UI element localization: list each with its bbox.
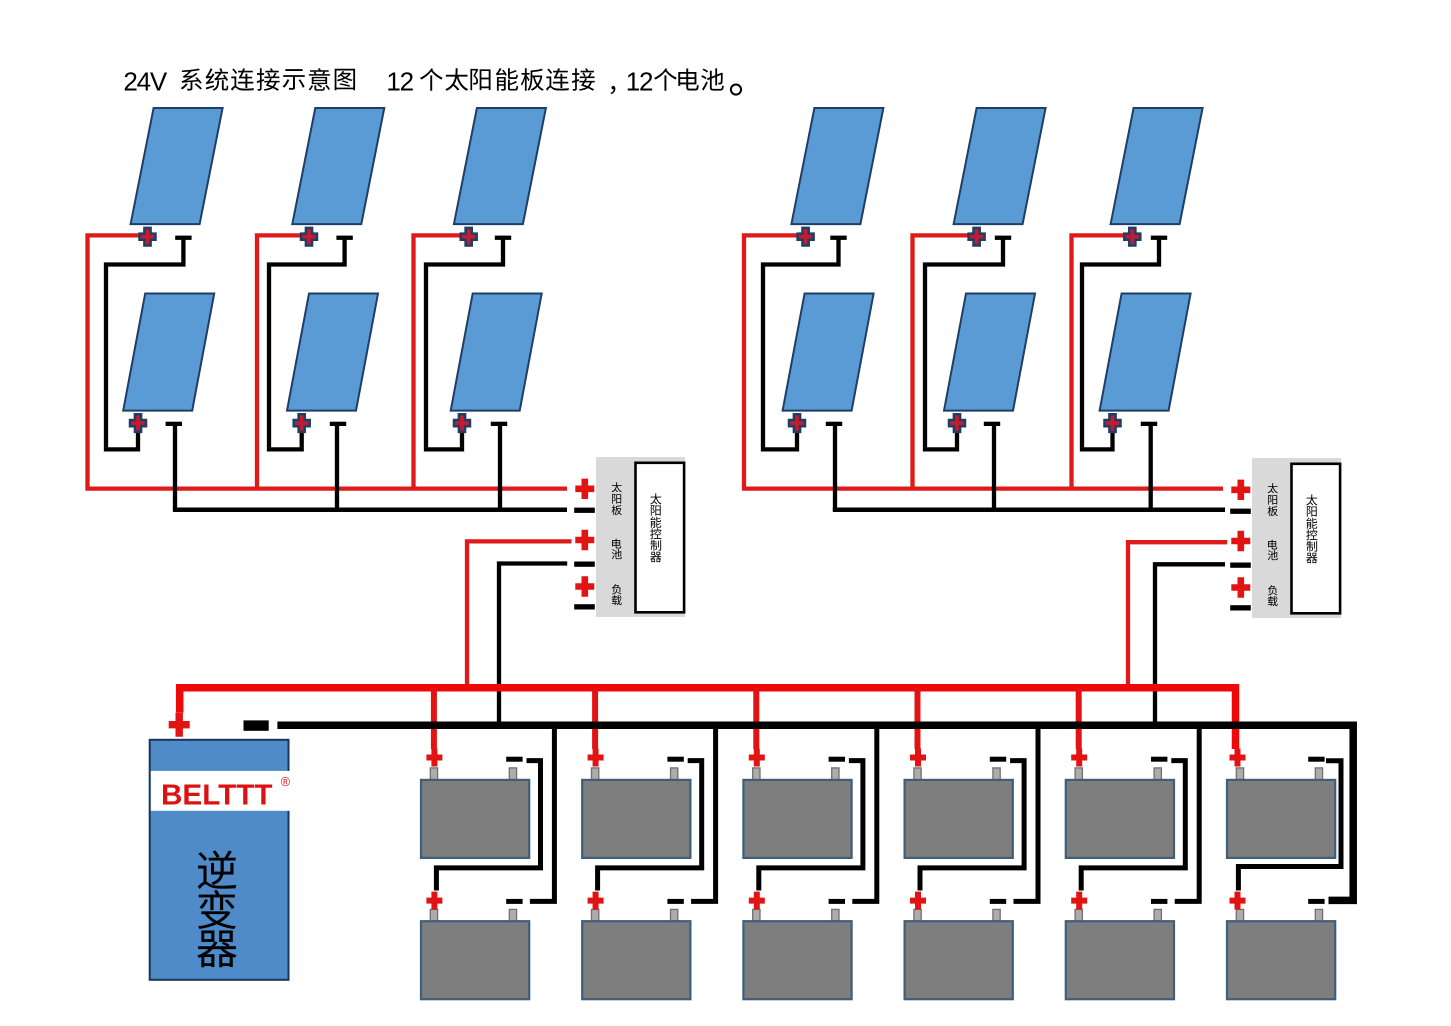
svg-text:BELTTT: BELTTT [161, 779, 273, 811]
svg-text:12: 12 [626, 67, 653, 97]
svg-text:24V: 24V [123, 67, 168, 97]
svg-text:12: 12 [386, 67, 413, 97]
svg-text:®: ® [281, 775, 291, 789]
